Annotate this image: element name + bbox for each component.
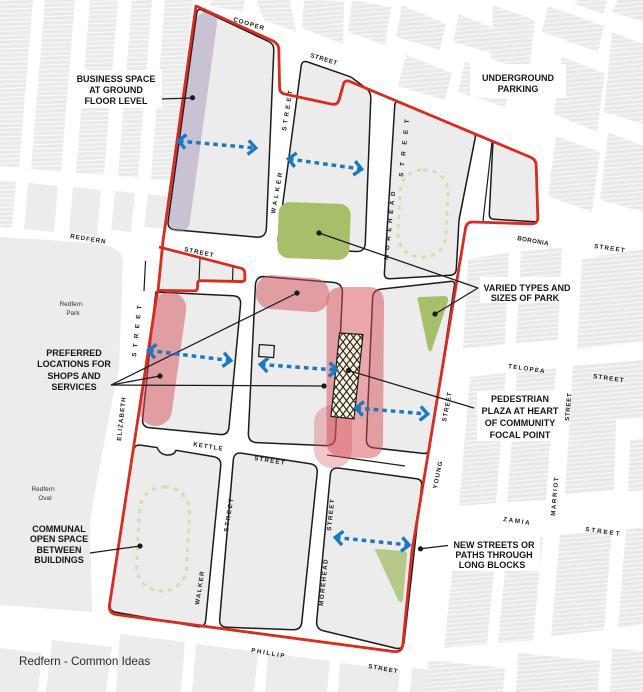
svg-text:PARKING: PARKING [498, 84, 539, 94]
svg-text:BETWEEN: BETWEEN [37, 545, 82, 555]
svg-text:VARIED TYPES AND: VARIED TYPES AND [483, 283, 571, 293]
svg-text:Redfern - Common Ideas: Redfern - Common Ideas [19, 655, 150, 668]
svg-text:COMMUNAL: COMMUNAL [32, 524, 86, 534]
svg-text:NEW STREETS OR: NEW STREETS OR [453, 540, 535, 550]
svg-text:FOCAL POINT: FOCAL POINT [490, 430, 551, 440]
svg-text:Park: Park [66, 310, 80, 317]
svg-text:BUILDINGS: BUILDINGS [34, 555, 84, 565]
svg-text:PREFERRED: PREFERRED [46, 348, 102, 358]
svg-text:SIZES OF PARK: SIZES OF PARK [491, 293, 560, 303]
svg-text:OF COMMUNITY: OF COMMUNITY [485, 418, 556, 428]
svg-text:UNDERGROUND: UNDERGROUND [482, 73, 555, 83]
svg-text:PEDESTRIAN: PEDESTRIAN [491, 394, 549, 404]
svg-text:Oval: Oval [38, 495, 52, 502]
svg-text:AT GROUND: AT GROUND [89, 85, 143, 95]
svg-text:PATHS THROUGH: PATHS THROUGH [455, 550, 532, 560]
svg-text:SERVICES: SERVICES [51, 382, 96, 392]
svg-text:SHOPS AND: SHOPS AND [47, 371, 101, 381]
svg-text:PLAZA AT HEART: PLAZA AT HEART [482, 406, 559, 416]
svg-text:FLOOR LEVEL: FLOOR LEVEL [85, 96, 149, 106]
svg-text:BUSINESS SPACE: BUSINESS SPACE [77, 74, 156, 84]
svg-text:Redfern: Redfern [31, 486, 55, 493]
svg-text:OPEN SPACE: OPEN SPACE [30, 534, 88, 544]
svg-text:Redfern: Redfern [59, 301, 83, 308]
svg-text:LOCATIONS FOR: LOCATIONS FOR [37, 359, 111, 369]
svg-text:LONG BLOCKS: LONG BLOCKS [459, 560, 526, 570]
